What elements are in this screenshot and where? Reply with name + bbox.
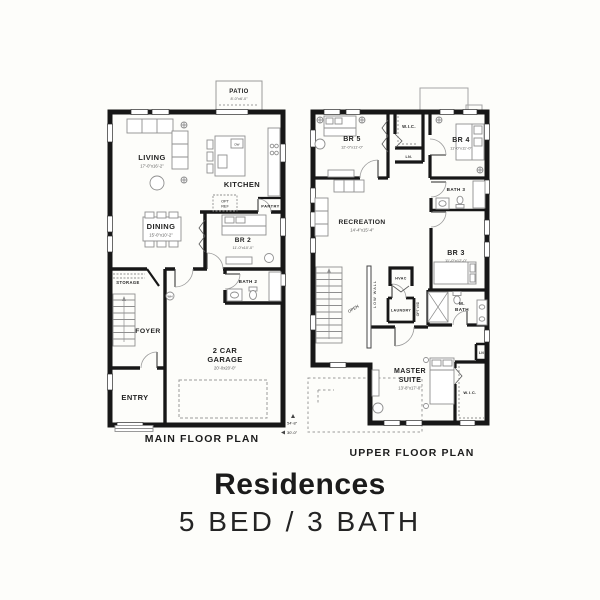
- furniture: [113, 119, 281, 432]
- width-dimension: 30'-0": [287, 430, 298, 435]
- room-label-garage-1: 2 CAR: [213, 346, 238, 355]
- master-bath-label-1: M.: [459, 301, 465, 306]
- room-label-pantry: PANTRY: [261, 204, 279, 209]
- room-label-storage: STORAGE: [116, 280, 139, 285]
- room-label-patio: PATIO: [229, 89, 248, 95]
- plan-title: Residences: [0, 468, 600, 502]
- low-wall-label: LOW WALL: [373, 280, 377, 308]
- room-label-living: LIVING: [138, 153, 165, 162]
- depth-dimension: 54'-8": [287, 421, 298, 426]
- room-dim-br2: 11'-0"x10'-0": [233, 246, 255, 250]
- room-label-master-2: SUITE: [399, 377, 422, 384]
- hvac-label: HVAC: [395, 277, 407, 281]
- room-label-linen-hall: LN.: [406, 155, 413, 159]
- upper-floor-plan: BR 5 12'-0"x11'-0" W.I.C. LN. BR 4 11'-0…: [300, 80, 500, 470]
- room-label-foyer: FOYER: [135, 328, 160, 335]
- room-label-kitchen: KITCHEN: [224, 180, 260, 189]
- room-dim-dining: 15'-0"x10'-2": [149, 233, 173, 238]
- water-heater-label: W/H: [167, 295, 172, 299]
- room-dim-patio: 8'-0"x6'-0": [230, 97, 248, 101]
- main-floor-caption: MAIN FLOOR PLAN: [145, 433, 260, 445]
- garage-door-outline: [179, 380, 267, 418]
- stairs: [316, 267, 342, 343]
- room-dim-br3: 11'-0"x12'-0": [445, 258, 468, 263]
- room-dim-br4: 11'-0"x11'-0": [450, 146, 472, 151]
- room-label-wic-master: W.I.C.: [463, 390, 476, 395]
- room-label-br2: BR 2: [235, 237, 251, 244]
- room-label-master-1: MASTER: [394, 368, 426, 375]
- room-dim-br5: 12'-0"x11'-0": [341, 145, 364, 150]
- plan-subtitle: 5 BED / 3 BATH: [0, 506, 600, 538]
- room-dim-recreation: 14'-4"x15'-4": [350, 228, 374, 233]
- optref-label-2: REF: [221, 205, 229, 209]
- room-label-br4: BR 4: [452, 137, 470, 144]
- room-label-bath2: BATH 2: [239, 279, 258, 284]
- room-dim-living: 17'-0"x16'-2": [140, 164, 164, 169]
- room-label-br3: BR 3: [447, 250, 465, 257]
- title-block: Residences 5 BED / 3 BATH: [0, 468, 600, 538]
- patio-outline: [216, 81, 262, 111]
- low-wall: [367, 266, 371, 348]
- stairs: [113, 294, 135, 346]
- room-label-linen-master: LN: [479, 351, 484, 355]
- room-label-dining: DINING: [147, 222, 176, 231]
- stair-open-label: OPEN: [347, 303, 360, 314]
- room-label-entry: ENTRY: [121, 393, 148, 402]
- room-label-br5: BR 5: [343, 136, 361, 143]
- room-label-wic-hall: W.I.C.: [402, 124, 416, 129]
- upper-floor-caption: UPPER FLOOR PLAN: [350, 447, 475, 459]
- dimension-arrow-up: [291, 414, 295, 418]
- opt-wd-label: OPT W/D: [416, 301, 420, 316]
- laundry-label: LAUNDRY: [391, 309, 411, 313]
- room-label-recreation: RECREATION: [338, 219, 385, 226]
- master-bath-label-2: BATH: [455, 307, 469, 312]
- room-label-garage-2: GARAGE: [207, 355, 242, 364]
- main-floor-plan: PATIO 8'-0"x6'-0" LIVING 17'-0"x16'-2" K…: [95, 68, 310, 448]
- optref-label-1: OPT: [221, 200, 229, 204]
- dishwasher-label: DW: [235, 143, 240, 147]
- dimension-arrow-left: [281, 431, 285, 435]
- room-label-bath3: BATH 3: [447, 187, 466, 192]
- room-dim-garage: 20'-0x20'-0": [214, 366, 236, 371]
- room-dim-master: 13'-8"x17'-0": [398, 386, 422, 391]
